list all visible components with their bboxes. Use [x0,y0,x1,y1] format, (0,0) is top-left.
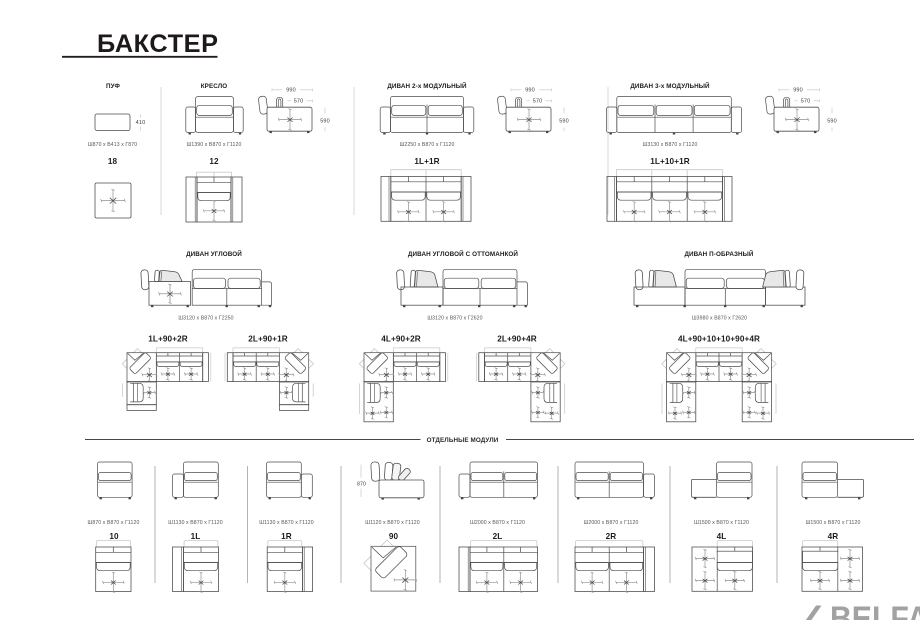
svg-text:ДИВАН УГЛОВОЙ С ОТТОМАНКОЙ: ДИВАН УГЛОВОЙ С ОТТОМАНКОЙ [408,249,519,258]
svg-text:BELFA: BELFA [830,600,920,620]
svg-text:ОТДЕЛЬНЫЕ МОДУЛИ: ОТДЕЛЬНЫЕ МОДУЛИ [427,437,499,444]
svg-text:4L: 4L [717,532,727,541]
svg-text:Ш2000 x В870 x Г1120: Ш2000 x В870 x Г1120 [470,520,525,526]
svg-text:Ш3120 x В870 x Г2620: Ш3120 x В870 x Г2620 [427,316,482,322]
svg-text:Ш2000 x В870 x Г1120: Ш2000 x В870 x Г1120 [584,520,639,526]
svg-text:4L+90+2R: 4L+90+2R [381,335,421,344]
svg-text:Ш2250 x В870 x Г1120: Ш2250 x В870 x Г1120 [400,142,455,148]
svg-text:Ш3130 x В870 x Г1120: Ш3130 x В870 x Г1120 [643,142,698,148]
svg-text:12: 12 [209,157,219,166]
svg-text:2L+90+1R: 2L+90+1R [248,335,288,344]
svg-text:990: 990 [793,87,802,93]
svg-text:570: 570 [533,98,542,104]
svg-text:Ш1500 x В870 x Г1120: Ш1500 x В870 x Г1120 [694,520,749,526]
svg-text:Ш870 x В413 x Г870: Ш870 x В413 x Г870 [88,142,137,148]
svg-text:Ш1500 x В870 x Г1120: Ш1500 x В870 x Г1120 [806,520,861,526]
svg-text:2R: 2R [606,532,617,541]
svg-text:1R: 1R [281,532,292,541]
svg-text:18: 18 [108,157,118,166]
svg-text:ДИВАН 3-х МОДУЛЬНЫЙ: ДИВАН 3-х МОДУЛЬНЫЙ [630,81,710,90]
svg-text:990: 990 [286,87,295,93]
svg-text:570: 570 [801,98,810,104]
svg-text:1L+90+2R: 1L+90+2R [148,335,188,344]
svg-text:10: 10 [109,532,119,541]
svg-text:Ш1390 x В870 x Г1120: Ш1390 x В870 x Г1120 [187,142,242,148]
svg-text:ДИВАН УГЛОВОЙ: ДИВАН УГЛОВОЙ [186,249,242,258]
svg-text:ДИВАН П-ОБРАЗНЫЙ: ДИВАН П-ОБРАЗНЫЙ [684,249,753,258]
svg-text:870: 870 [357,482,366,488]
svg-text:1L+10+1R: 1L+10+1R [650,157,690,166]
svg-text:990: 990 [525,87,534,93]
svg-text:410: 410 [136,120,146,126]
svg-text:590: 590 [559,118,568,124]
svg-text:Ш3120 x В870 x Г2250: Ш3120 x В870 x Г2250 [178,316,233,322]
svg-text:1L: 1L [191,532,201,541]
svg-text:Ш1130 x В870 x Г1120: Ш1130 x В870 x Г1120 [168,520,223,526]
svg-text:1L+1R: 1L+1R [414,157,439,166]
svg-text:590: 590 [320,118,329,124]
svg-text:2L: 2L [493,532,503,541]
svg-text:ПУФ: ПУФ [106,83,120,90]
svg-text:Ш1130 x В870 x Г1120: Ш1130 x В870 x Г1120 [259,520,314,526]
svg-text:Ш1120 x В870 x Г1120: Ш1120 x В870 x Г1120 [365,520,420,526]
svg-text:4L+90+10+10+90+4R: 4L+90+10+10+90+4R [678,335,760,344]
svg-text:2L+90+4R: 2L+90+4R [497,335,537,344]
svg-text:КРЕСЛО: КРЕСЛО [201,83,228,90]
svg-text:Ш3980 x В870 x Г2620: Ш3980 x В870 x Г2620 [692,316,747,322]
svg-text:БАКСТЕР: БАКСТЕР [97,30,219,58]
svg-text:570: 570 [294,98,303,104]
svg-text:590: 590 [827,118,836,124]
svg-text:4R: 4R [828,532,839,541]
svg-text:ДИВАН 2-х МОДУЛЬНЫЙ: ДИВАН 2-х МОДУЛЬНЫЙ [387,81,467,90]
svg-text:Ш870 x В870 x Г1120: Ш870 x В870 x Г1120 [88,520,140,526]
svg-text:90: 90 [389,532,399,541]
